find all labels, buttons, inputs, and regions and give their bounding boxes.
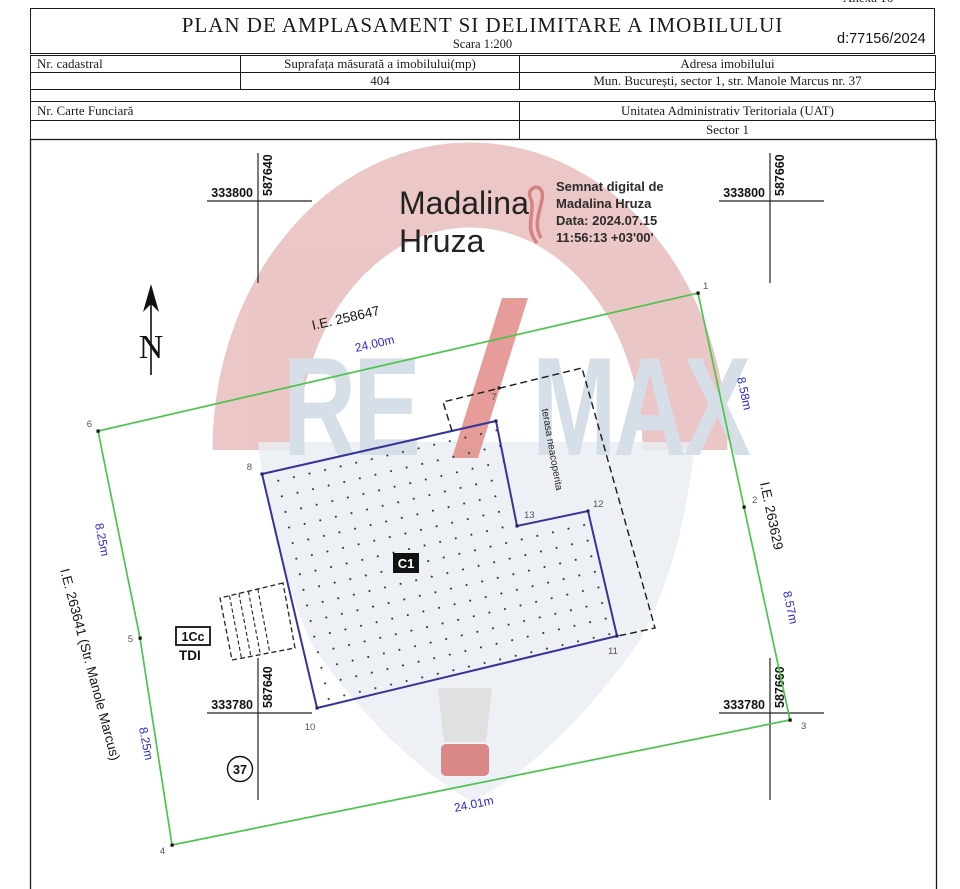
scale-label: Scara 1:200 (31, 37, 934, 51)
header-uat: Unitatea Administrativ Teritoriala (UAT) (520, 102, 936, 121)
grid-y-label: 587640 (261, 666, 275, 708)
value-adresa: Mun. București, sector 1, str. Manole Ma… (520, 73, 936, 90)
parcel-point-label: 5 (128, 634, 133, 645)
building-point-label: 11 (608, 646, 618, 657)
north-label: N (139, 329, 164, 366)
signature-detail-line: Madalina Hruza (556, 195, 664, 212)
parcel-point-label: 3 (801, 721, 806, 732)
dim-left-lower: 8.25m (136, 726, 156, 761)
table-row: Nr. Carte Funciară Unitatea Administrati… (31, 102, 936, 121)
parcel-point-label: 2 (752, 495, 757, 506)
parcel-point-label: 4 (160, 846, 165, 857)
signature-name-line2: Hruza (399, 222, 529, 260)
table-row: 404 Mun. București, sector 1, str. Manol… (31, 73, 936, 90)
page-title: PLAN DE AMPLASAMENT SI DELIMITARE A IMOB… (31, 14, 934, 37)
parcel-point-label: 6 (87, 419, 92, 430)
watermark-text-max: MAX (532, 328, 751, 485)
doc-number: d:77156/2024 (837, 31, 926, 47)
grid-y-label: 587660 (773, 154, 787, 196)
grid-cross-top-right (719, 153, 824, 283)
signature-name: Madalina Hruza (399, 184, 529, 260)
watermark-basket-icon (441, 744, 489, 776)
parcel-point-label: 1 (703, 281, 708, 292)
dim-bottom: 24.01m (453, 793, 495, 815)
info-table: Nr. cadastral Suprafața măsurată a imobi… (30, 55, 936, 90)
value-suprafata: 404 (241, 73, 520, 90)
annex-note: Anexa 16 (843, 0, 893, 6)
ie-left-label: I.E. 263641 (Str. Manole Marcus) (57, 567, 123, 762)
table-row: Sector 1 (31, 121, 936, 140)
signature-detail-line: 11:56:13 +03'00' (556, 229, 664, 246)
grid-x-label: 333780 (723, 698, 765, 712)
title-box: PLAN DE AMPLASAMENT SI DELIMITARE A IMOB… (30, 8, 935, 54)
value-carte-funciara (31, 121, 520, 140)
value-nr-cadastral (31, 73, 241, 90)
grid-x-label: 333800 (723, 186, 765, 200)
grid-cross-bottom-right (719, 658, 824, 800)
grid-x-label: 333800 (211, 186, 253, 200)
signature-details: Semnat digital de Madalina Hruza Data: 2… (556, 178, 664, 246)
secondary-table: Nr. Carte Funciară Unitatea Administrati… (30, 101, 936, 140)
signature-name-line1: Madalina (399, 184, 529, 222)
watermark-basket-top (438, 688, 492, 742)
dim-right-lower: 8.57m (780, 590, 801, 626)
building-point-label: 8 (247, 462, 252, 473)
building-point-label: 12 (593, 499, 604, 510)
building-label: C1 (398, 556, 415, 571)
annex-sub-label: TDI (179, 648, 201, 663)
building-point-label: 7 (491, 392, 496, 403)
grid-y-label: 587640 (261, 154, 275, 196)
grid-cross-bottom-left (207, 658, 312, 800)
street-number: 37 (233, 763, 247, 777)
header-nr-cadastral: Nr. cadastral (31, 56, 241, 73)
header-carte-funciara: Nr. Carte Funciară (31, 102, 520, 121)
grid-x-label: 333780 (211, 698, 253, 712)
signature-detail-line: Data: 2024.07.15 (556, 212, 664, 229)
table-row: Nr. cadastral Suprafața măsurată a imobi… (31, 56, 936, 73)
header-adresa: Adresa imobilului (520, 56, 936, 73)
building-point-label: 13 (524, 510, 535, 521)
value-uat: Sector 1 (520, 121, 936, 140)
signature-detail-line: Semnat digital de (556, 178, 664, 195)
building-point-label: 10 (305, 722, 316, 733)
annex-label: 1Cc (182, 630, 205, 644)
ie-right-label: I.E. 263629 (757, 481, 786, 552)
table-spacer (30, 90, 935, 101)
header-suprafata: Suprafața măsurată a imobilului(mp) (241, 56, 520, 73)
dim-left-upper: 8.25m (92, 522, 112, 557)
stairs-outline (220, 583, 295, 660)
